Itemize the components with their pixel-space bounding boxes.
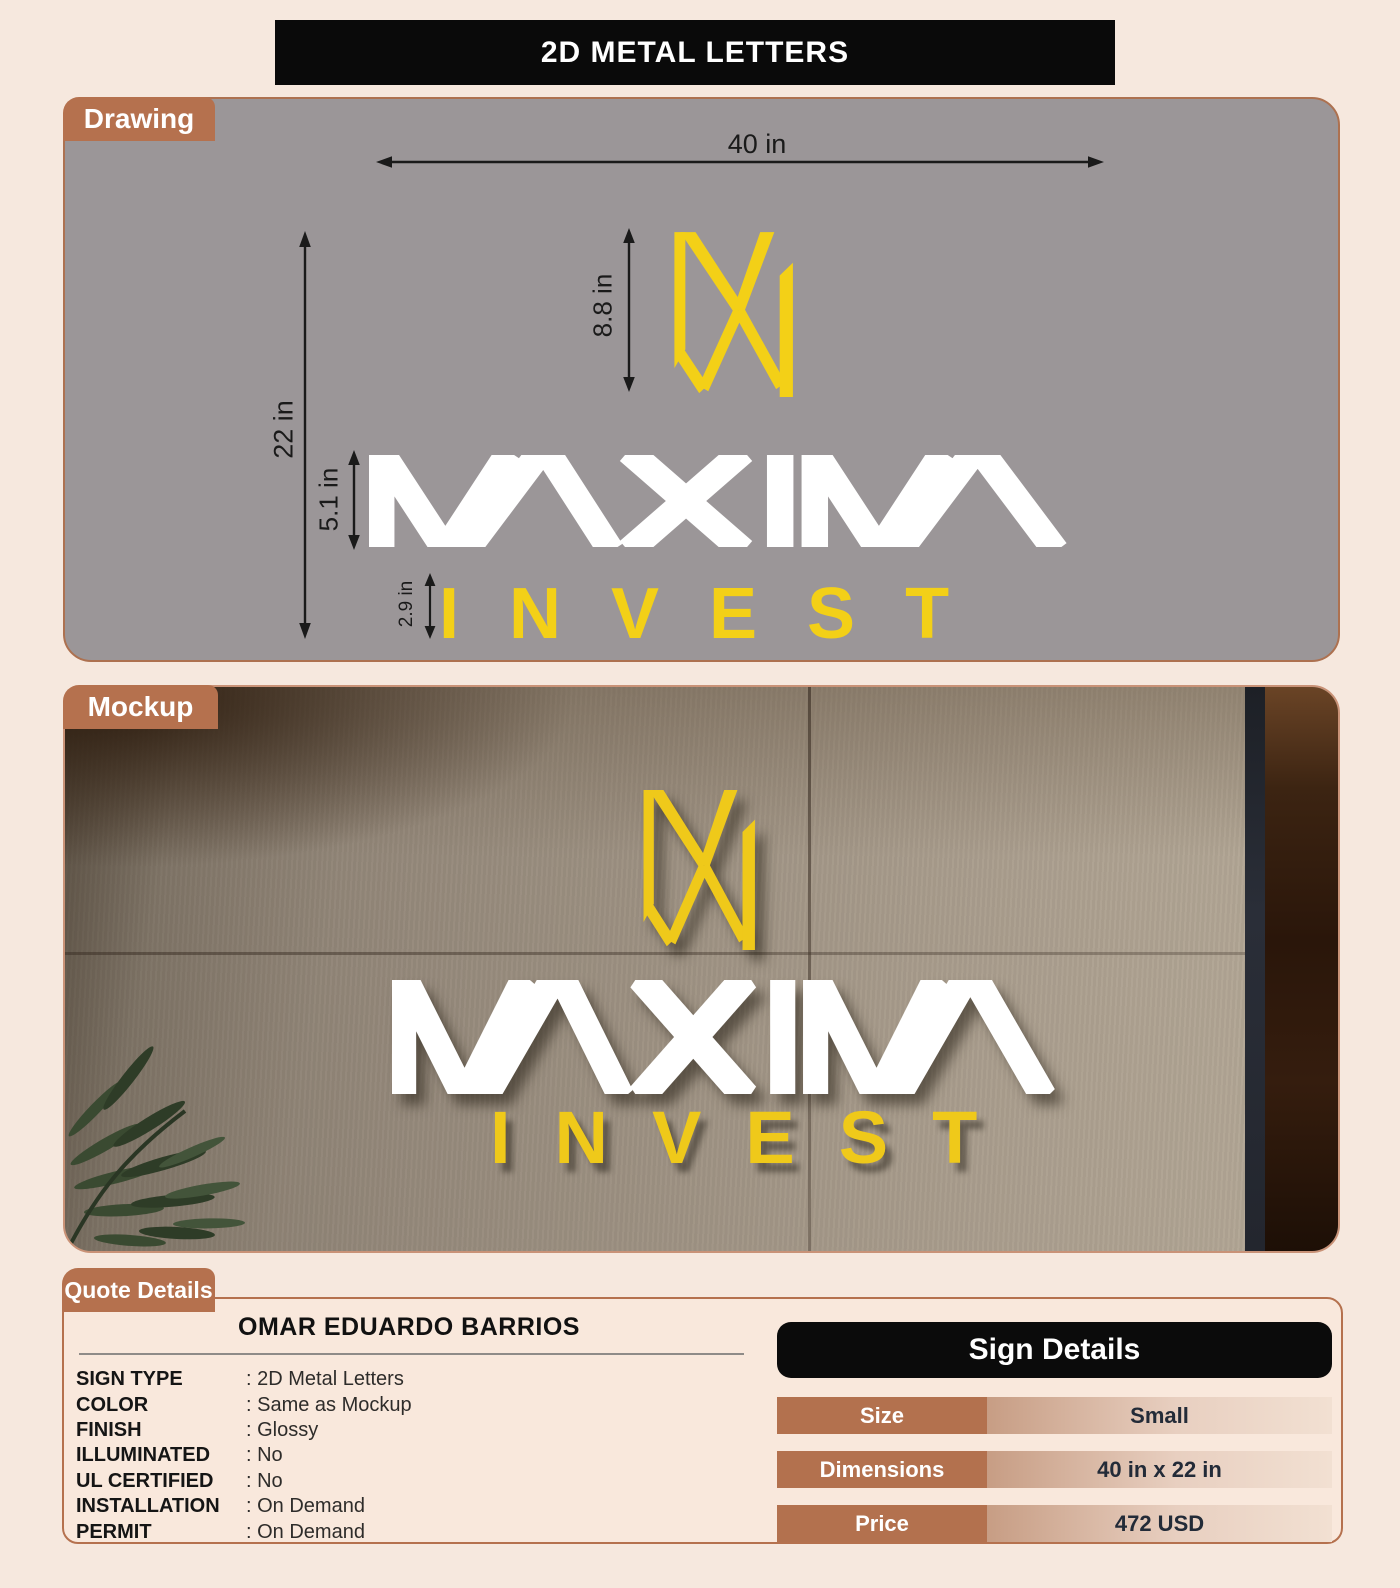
table-row-dimensions: Dimensions 40 in x 22 in [777, 1451, 1332, 1488]
quote-details-panel: OMAR EDUARDO BARRIOS SIGN TYPE : 2D Meta… [62, 1297, 1343, 1544]
spec-label: PERMIT [76, 1521, 246, 1544]
quote-document: 2D METAL LETTERS Drawing 40 in 22 in 8.8… [0, 0, 1400, 1588]
mockup-section-tab: Mockup [63, 685, 218, 729]
mockup-panel: INVEST [63, 685, 1340, 1253]
spec-value: : No [246, 1470, 283, 1493]
spec-value: : 2D Metal Letters [246, 1368, 404, 1391]
spec-row-sign-type: SIGN TYPE : 2D Metal Letters [76, 1367, 736, 1392]
spec-list: SIGN TYPE : 2D Metal Letters COLOR : Sam… [76, 1367, 736, 1545]
row-value: 40 in x 22 in [987, 1451, 1332, 1488]
drawing-panel: 40 in 22 in 8.8 in 5.1 in 2.9 in [63, 97, 1340, 662]
mockup-brand-monogram-icon [630, 785, 771, 950]
spec-row-ul-certified: UL CERTIFIED : No [76, 1469, 736, 1494]
dimension-label-icon-height: 8.8 in [588, 271, 619, 341]
quote-details-tab: Quote Details [62, 1268, 215, 1312]
spec-value: : No [246, 1444, 283, 1467]
icon-height-dimension-arrow [621, 227, 637, 393]
dimension-label-wordmark-height: 5.1 in [314, 465, 345, 535]
spec-value: : On Demand [246, 1495, 365, 1518]
wordmark-maxima [369, 455, 1112, 547]
spec-label: UL CERTIFIED [76, 1470, 246, 1493]
subtext-height-dimension-arrow [422, 573, 438, 639]
wall-horizontal-seam [65, 952, 1247, 955]
spec-label: COLOR [76, 1394, 246, 1417]
width-dimension-arrow [375, 154, 1105, 170]
mockup-subtext-invest: INVEST [490, 1095, 1021, 1180]
document-title-banner: 2D METAL LETTERS [275, 20, 1115, 85]
drawing-section-tab: Drawing [63, 97, 215, 141]
row-label: Size [777, 1397, 987, 1434]
subtext-invest: INVEST [439, 573, 999, 655]
sign-details-header: Sign Details [777, 1322, 1332, 1378]
table-row-size: Size Small [777, 1397, 1332, 1434]
spec-row-installation: INSTALLATION : On Demand [76, 1494, 736, 1519]
wall-edge-shadow [1245, 687, 1265, 1251]
height-dimension-arrow [297, 230, 313, 640]
quote-tab-label: Quote Details [64, 1277, 212, 1304]
spec-row-illuminated: ILLUMINATED : No [76, 1443, 736, 1468]
document-title: 2D METAL LETTERS [541, 36, 849, 70]
sign-details-title: Sign Details [969, 1333, 1141, 1367]
plant-leaves [65, 1016, 255, 1251]
spec-row-color: COLOR : Same as Mockup [76, 1392, 736, 1417]
table-row-price: Price 472 USD [777, 1505, 1332, 1542]
mockup-wordmark-maxima [392, 980, 1098, 1094]
row-value: 472 USD [987, 1505, 1332, 1542]
customer-name: OMAR EDUARDO BARRIOS [74, 1313, 744, 1342]
drawing-tab-label: Drawing [84, 103, 194, 135]
spec-label: SIGN TYPE [76, 1368, 246, 1391]
spec-label: INSTALLATION [76, 1495, 246, 1518]
spec-label: ILLUMINATED [76, 1444, 246, 1467]
spec-value: : On Demand [246, 1521, 365, 1544]
spec-label: FINISH [76, 1419, 246, 1442]
wood-panel [1265, 687, 1340, 1251]
spec-row-finish: FINISH : Glossy [76, 1418, 736, 1443]
dimension-label-overall-height: 22 in [269, 395, 300, 465]
brand-monogram-icon [660, 227, 810, 397]
row-value: Small [987, 1397, 1332, 1434]
row-label: Price [777, 1505, 987, 1542]
divider [79, 1353, 744, 1355]
row-label: Dimensions [777, 1451, 987, 1488]
spec-value: : Glossy [246, 1419, 318, 1442]
mockup-tab-label: Mockup [88, 691, 194, 723]
dimension-label-subtext-height: 2.9 in [396, 574, 418, 634]
spec-row-permit: PERMIT : On Demand [76, 1519, 736, 1544]
wordmark-height-dimension-arrow [346, 450, 362, 550]
spec-value: : Same as Mockup [246, 1394, 412, 1417]
